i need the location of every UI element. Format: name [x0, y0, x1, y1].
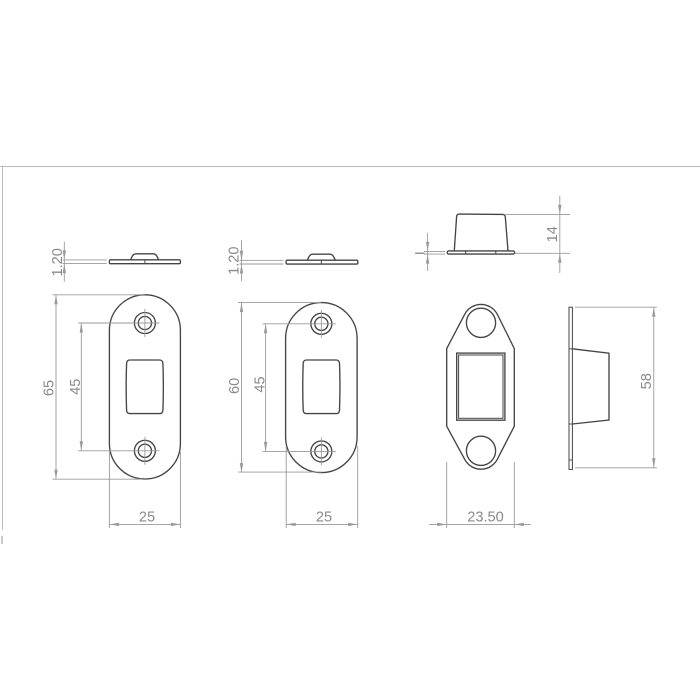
- svg-text:23.50: 23.50: [467, 509, 504, 525]
- svg-text:25: 25: [316, 510, 332, 526]
- svg-text:58: 58: [639, 373, 655, 389]
- svg-text:14: 14: [545, 226, 561, 242]
- svg-text:25: 25: [139, 510, 155, 526]
- svg-text:45: 45: [68, 379, 84, 395]
- svg-text:65: 65: [41, 380, 57, 396]
- svg-text:60: 60: [227, 378, 243, 394]
- svg-text:1.20: 1.20: [226, 246, 242, 274]
- svg-text:1.20: 1.20: [50, 248, 66, 276]
- svg-text:45: 45: [253, 376, 269, 392]
